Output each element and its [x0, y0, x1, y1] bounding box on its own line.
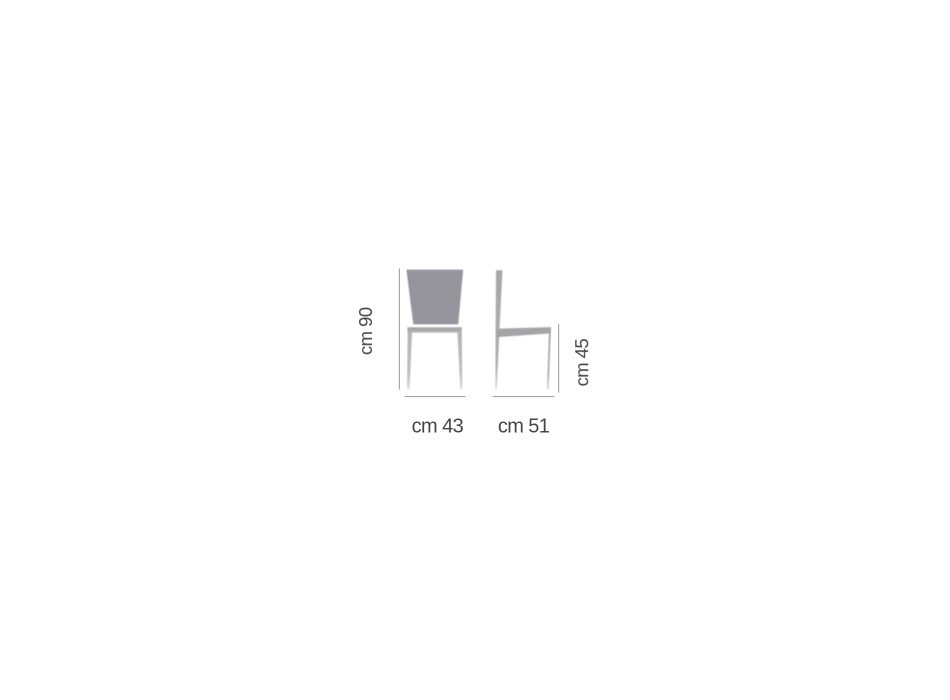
svg-text:cm 45: cm 45: [571, 339, 592, 387]
svg-text:cm 51: cm 51: [498, 416, 550, 438]
svg-text:cm 43: cm 43: [412, 416, 464, 438]
svg-text:cm 90: cm 90: [355, 307, 376, 355]
